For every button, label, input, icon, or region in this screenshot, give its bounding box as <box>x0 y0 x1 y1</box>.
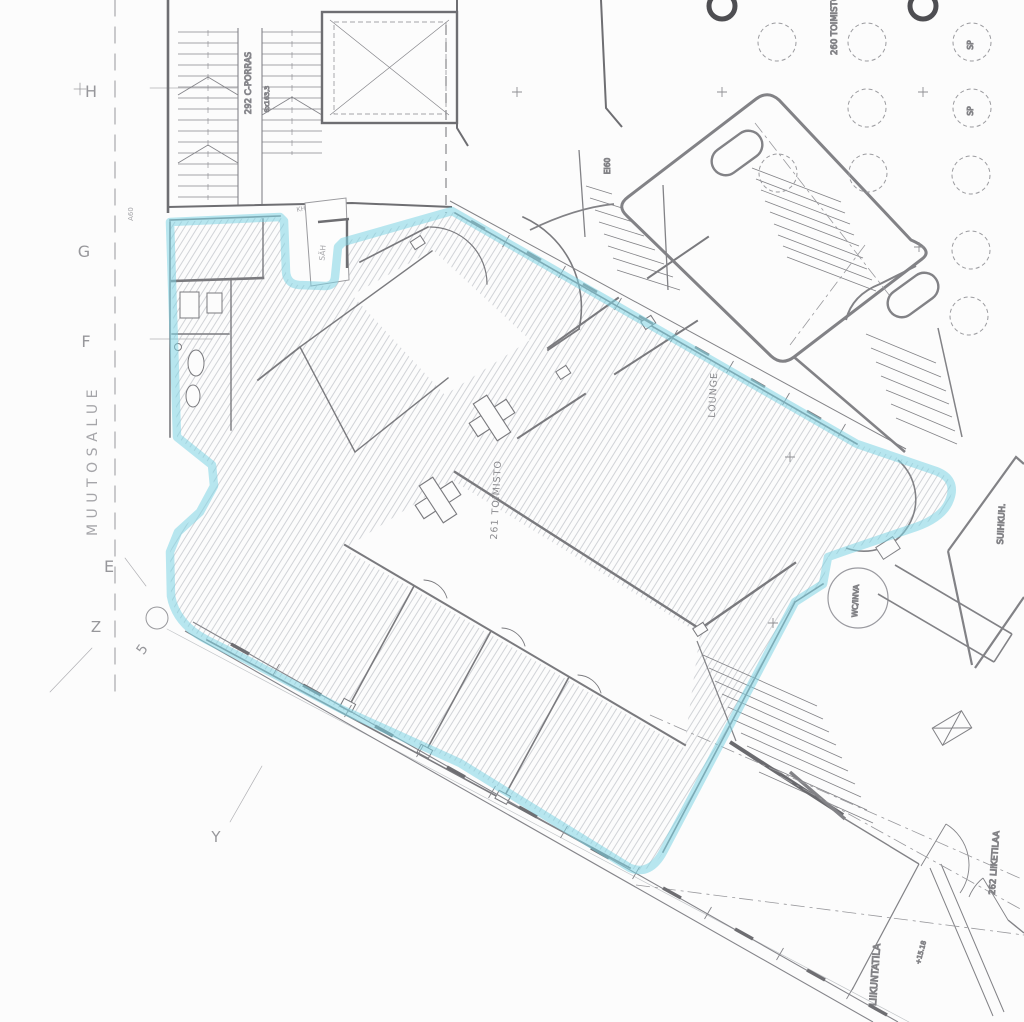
label-ei60: EI60 <box>603 158 612 175</box>
grid-letter-h: H <box>85 82 97 101</box>
label-sp-2: SP <box>966 106 975 116</box>
fixture-sink-2 <box>207 293 222 313</box>
grid-letter-f: F <box>81 332 90 351</box>
label-sah: SÄH <box>317 245 327 261</box>
fixture-wc-1 <box>188 350 204 376</box>
grid-letter-z: Z <box>91 618 101 636</box>
label-sp-1: SP <box>966 40 975 50</box>
label-stair-c-porras: 292 C-PORRAS <box>244 52 254 114</box>
floor-plan-page: H G F E Z Y 5 MUUTOSALUE A60 292 C-PORRA… <box>0 0 1024 1022</box>
fixture-sink-1 <box>180 292 199 318</box>
label-wc-inva: WC/INVA <box>850 583 861 617</box>
label-toimisto-260: 260 TOIMISTO <box>830 0 840 55</box>
label-stair-dim: 8x163,3 <box>263 86 271 113</box>
label-muutosalue: MUUTOSALUE <box>85 384 101 536</box>
grid-letter-e: E <box>104 557 114 576</box>
label-a60: A60 <box>127 207 135 221</box>
grid-letter-g: G <box>78 242 90 261</box>
floor-plan-canvas: H G F E Z Y 5 MUUTOSALUE A60 292 C-PORRA… <box>0 0 1024 1022</box>
grid-letter-y: Y <box>210 828 221 846</box>
fixture-wc-2 <box>186 385 200 407</box>
